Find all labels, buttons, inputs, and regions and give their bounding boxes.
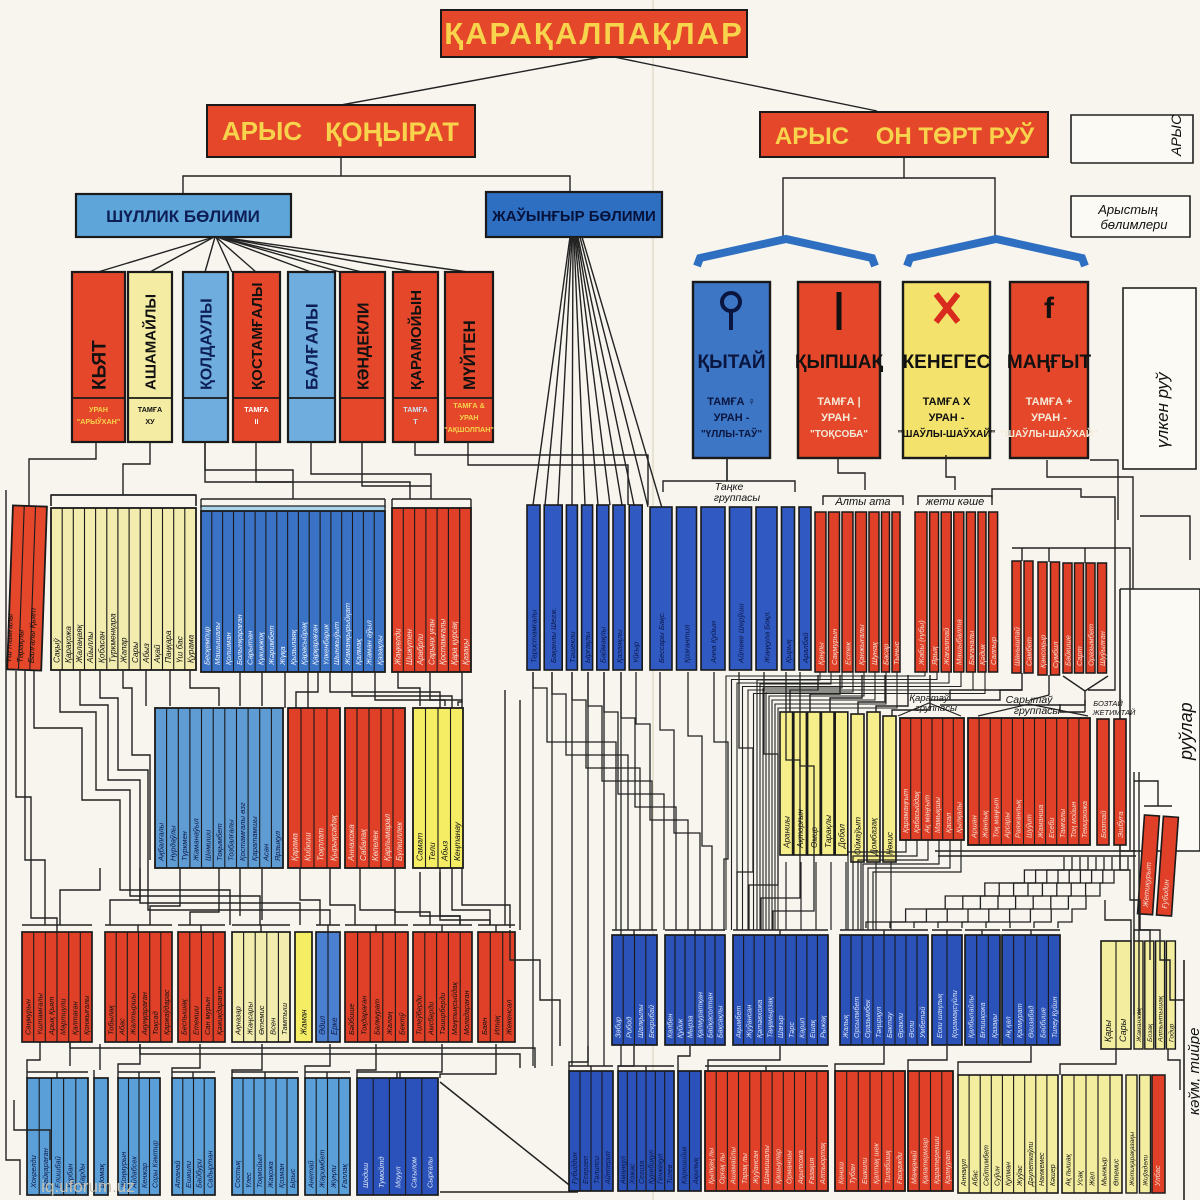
svg-text:Араншы: Араншы [782, 816, 791, 849]
svg-text:бөлимлери: бөлимлери [1100, 217, 1167, 232]
svg-text:Оразымбек: Оразымбек [863, 999, 872, 1038]
svg-text:Қарасыйрақ: Қарасыйрақ [300, 622, 309, 665]
svg-text:ҚОСТАМҒАЛЫ: ҚОСТАМҒАЛЫ [249, 282, 266, 390]
svg-text:Моуул: Моуул [393, 1166, 402, 1188]
svg-text:КЕНЕГЕС: КЕНЕГЕС [903, 352, 991, 373]
svg-text:Қырық: Қырық [784, 639, 793, 663]
svg-text:Тоқплат: Тоқплат [317, 828, 326, 861]
svg-text:Тәрс: Тәрс [787, 1022, 796, 1038]
svg-text:Кәлбен: Кәлбен [666, 1014, 675, 1038]
svg-text:Тилабшиқ: Тилабшиқ [883, 1150, 892, 1184]
svg-text:Байбури: Байбури [195, 1159, 204, 1188]
svg-text:Т: Т [413, 417, 418, 426]
svg-text:Хожас: Хожас [630, 1163, 637, 1185]
svg-text:кәўм, тийре: кәўм, тийре [1186, 1028, 1200, 1115]
svg-text:Тилев: Тилев [667, 1164, 674, 1184]
svg-text:Тарақлы: Тарақлы [15, 630, 25, 663]
svg-text:Сабалақ: Сабалақ [359, 828, 368, 861]
svg-text:Айыллы: Айыллы [86, 632, 95, 664]
svg-text:Ғубиддин: Ғубиддин [570, 1152, 579, 1184]
svg-text:Қазақы: Қазақы [461, 639, 470, 665]
svg-text:Қолшман: Қолшман [224, 631, 233, 665]
svg-text:Манқанай: Манқанай [909, 1151, 918, 1184]
svg-text:Қырықсадақ: Қырықсадақ [330, 814, 339, 861]
svg-text:МҮЙТЕН: МҮЙТЕН [460, 320, 479, 390]
svg-text:ТАМҒА: ТАМҒА [403, 405, 427, 414]
svg-text:Аршан: Аршан [969, 815, 978, 839]
svg-text:Қанжығалы: Қанжығалы [857, 624, 866, 665]
svg-text:Тели: Тели [427, 842, 437, 861]
svg-text:Амсберди: Амсберди [426, 1002, 435, 1036]
svg-text:Қалмурат: Қалмурат [1015, 1003, 1024, 1038]
svg-text:Күкикжоқ: Күкикжоқ [256, 632, 265, 665]
svg-text:Балмурат: Балмурат [372, 999, 381, 1035]
svg-text:Абас: Абас [971, 1170, 979, 1187]
svg-text:Аннақул: Аннақул [961, 1159, 968, 1187]
svg-text:Сағылом: Сағылом [410, 1157, 419, 1188]
svg-text:Рыжақ: Рыжақ [819, 1015, 828, 1038]
svg-text:Ақторғын: Ақторғын [796, 809, 805, 849]
svg-text:Қалмақ: Қалмақ [354, 639, 363, 665]
svg-text:Кәрип: Кәрип [797, 1018, 806, 1038]
svg-text:Соры Кәмтир: Соры Кәмтир [151, 1140, 160, 1188]
svg-text:Тәшекли: Тәшекли [568, 631, 577, 663]
svg-text:ҚОЛДАУЛЫ: ҚОЛДАУЛЫ [198, 298, 215, 390]
svg-text:Қурама: Қурама [187, 634, 196, 663]
svg-text:Бозтай: Бозтай [1099, 810, 1108, 838]
svg-text:Атанай: Атанай [173, 1161, 182, 1189]
svg-text:Анетай: Анетай [306, 1161, 315, 1189]
svg-text:Сарынх уған: Сарынх уған [428, 618, 437, 665]
svg-text:БАЛҒАЛЫ: БАЛҒАЛЫ [303, 303, 322, 390]
svg-text:Өтемис: Өтемис [257, 1005, 266, 1035]
svg-text:Тәңирқул: Тәңирқул [874, 1007, 883, 1038]
svg-text:Садыртан: Садыртан [205, 1151, 214, 1188]
svg-text:Жапар: Жапар [120, 637, 129, 664]
svg-text:Қалбылайлы: Қалбылайлы [967, 994, 976, 1038]
svg-text:Бектў: Бектў [398, 1011, 407, 1035]
svg-text:УРАН: УРАН [89, 405, 108, 414]
svg-text:Тилеўберди: Тилеўберди [415, 995, 424, 1035]
svg-text:Кийкиш: Кийкиш [304, 832, 313, 861]
svg-text:Сумбил: Сумбил [1051, 641, 1060, 668]
svg-text:Оймаўыт: Оймаўыт [854, 817, 863, 855]
svg-text:Ақ пышақ: Ақ пышақ [1066, 1153, 1073, 1187]
svg-text:Мамықшы: Мамықшы [933, 797, 942, 833]
svg-text:Жалаңаяқ: Жалаңаяқ [75, 623, 84, 664]
svg-text:Қарамаңғыт: Қарамаңғыт [901, 789, 910, 833]
svg-text:ШҮЛЛИК БӨЛИМИ: ШҮЛЛИК БӨЛИМИ [106, 207, 260, 226]
svg-text:Ақназар: Ақназар [234, 1006, 243, 1036]
svg-text:Ырғақлы: Ырғақлы [583, 631, 592, 663]
svg-text:Қулман: Қулман [1006, 1162, 1013, 1186]
svg-text:Ғасқажди: Ғасқажди [895, 1152, 904, 1184]
svg-text:группасы: группасы [714, 492, 761, 504]
svg-text:УРАН -: УРАН - [929, 412, 965, 424]
svg-text:Жаңсары: Жаңсары [245, 1001, 254, 1036]
svg-text:Шуўылған: Шуўылған [1098, 631, 1107, 666]
svg-text:Ешақ: Ешақ [808, 1019, 817, 1038]
svg-text:Көпелек: Көпелек [371, 829, 380, 861]
svg-text:Жаңқула Боқл.: Жаңқула Боқл. [762, 611, 771, 664]
svg-text:Баймақлы: Баймақлы [599, 626, 608, 663]
svg-text:Жабы (ғүбы): Жабы (ғүбы) [917, 620, 926, 666]
svg-text:Өгизабад: Өгизабад [1027, 1006, 1036, 1038]
svg-text:Анна Қуйын: Анна Қуйын [709, 620, 718, 664]
svg-text:Қазаяқлы: Қазаяқлы [615, 629, 624, 663]
svg-text:Ешкили: Ешкили [860, 1158, 869, 1184]
svg-text:Шанышпай: Шанышпай [1012, 627, 1021, 666]
svg-text:Ақымбет: Ақымбет [734, 1006, 743, 1039]
svg-text:ҚАРАМОЙЫН: ҚАРАМОЙЫН [407, 290, 425, 390]
svg-text:УРАН -: УРАН - [714, 412, 750, 424]
svg-text:Алтынтышақ: Алтынтышақ [1158, 995, 1165, 1043]
svg-text:АРЫС: АРЫС [775, 123, 849, 150]
svg-text:Тоқдараған: Тоқдараған [360, 996, 369, 1035]
svg-text:Бақанлы Шегж.: Бақанлы Шегж. [549, 608, 558, 663]
svg-text:Қуребиқул: Қуребиқул [647, 1150, 655, 1184]
svg-text:Бәйкише: Бәйкише [1063, 635, 1072, 666]
svg-text:Қалтаған: Қалтаған [70, 1001, 79, 1035]
svg-text:Домбазақ: Домбазақ [870, 817, 879, 856]
svg-text:Сақыў: Сақыў [53, 638, 62, 663]
svg-text:МАҢҒЫТ: МАҢҒЫТ [1007, 352, 1092, 373]
svg-text:Паңқара: Паңқара [164, 630, 173, 663]
svg-text:Ақ маңғыт: Ақ маңғыт [923, 795, 932, 834]
svg-text:"ШАЎЛЫ-ШАЎХАЙ": "ШАЎЛЫ-ШАЎХАЙ" [898, 427, 996, 440]
svg-text:Машышалы: Машышалы [213, 622, 222, 665]
svg-text:Қостамғалы өзг: Қостамғалы өзг [238, 802, 247, 861]
svg-text:Ырыс: Ырыс [288, 1168, 297, 1188]
svg-text:Теристамғалы: Теристамғалы [529, 609, 538, 663]
svg-text:Жаңкелди: Жаңкелди [394, 628, 403, 666]
svg-text:Тубан: Тубан [848, 1164, 857, 1184]
svg-text:Жекенсал: Жекенсал [505, 999, 514, 1036]
svg-text:"АҚШОЛПАН": "АҚШОЛПАН" [444, 425, 494, 434]
svg-text:Қары: Қары [1103, 1020, 1113, 1042]
svg-text:"АРЫЎХАН": "АРЫЎХАН" [77, 417, 120, 426]
svg-text:Кениш: Кениш [837, 1162, 846, 1184]
svg-text:Қәдик: Қәдик [978, 644, 987, 665]
svg-text:Ғаллақ: Ғаллақ [340, 1164, 349, 1188]
svg-text:Айтеке Шерўши: Айтеке Шерўши [736, 603, 745, 664]
svg-text:ОН ТӨРТ РУЎ: ОН ТӨРТ РУЎ [876, 122, 1036, 150]
svg-text:Умбетәй: Умбетәй [918, 1007, 927, 1039]
svg-text:Тарақ лы: Тарақ лы [740, 1152, 749, 1184]
svg-text:Байқасолтан: Байқасолтан [706, 993, 715, 1038]
svg-text:Жуўансан: Жуўансан [745, 1005, 754, 1039]
svg-text:Қылқаң лы: Қылқаң лы [706, 1147, 715, 1184]
svg-text:Сары: Сары [1118, 1018, 1128, 1042]
svg-text:Жаманша: Жаманша [1036, 805, 1045, 839]
svg-text:Шижүтен: Шижүтен [405, 628, 414, 665]
svg-text:Сарытан: Сарытан [246, 630, 255, 665]
svg-text:Ярзықул: Ярзықул [273, 830, 282, 862]
svg-text:II: II [255, 417, 259, 426]
svg-text:Абыз: Абыз [142, 643, 151, 664]
svg-text:Шәмиши: Шәмиши [203, 829, 212, 861]
svg-text:Зәбир: Зәбир [613, 1017, 622, 1038]
svg-text:Жаман: Жаман [300, 1009, 309, 1036]
svg-text:Нанжемес: Нанжемес [1039, 1152, 1046, 1186]
svg-text:Қәжиқдараған: Қәжиқдараған [215, 986, 224, 1035]
svg-text:Тоқмойыл: Тоқмойыл [255, 1154, 264, 1188]
svg-text:Қәтәвхожа: Қәтәвхожа [755, 1000, 764, 1038]
svg-text:Мынжыр: Мынжыр [1102, 1157, 1109, 1186]
svg-text:Усақ: Усақ [1078, 1170, 1085, 1187]
svg-text:Қозғантил: Қозғантил [682, 624, 691, 663]
svg-text:Бақсақлы: Бақсақлы [716, 1005, 725, 1038]
svg-text:Сақмурын: Сақмурын [830, 628, 839, 665]
svg-text:Қостамғалы: Қостамғалы [439, 618, 448, 665]
svg-text:Тоқсад: Тоқсад [151, 1011, 160, 1035]
svg-text:Бағаналы: Бағаналы [967, 630, 976, 665]
svg-text:Таңамырзақ: Таңамырзақ [766, 996, 775, 1038]
svg-text:Әдил: Әдил [318, 1015, 327, 1035]
svg-text:Улбас: Улбас [1153, 1165, 1162, 1187]
svg-text:Жақожа: Жақожа [266, 1161, 275, 1189]
svg-text:Шуўит: Шуўит [1025, 814, 1034, 838]
svg-text:Жәримбет: Жәримбет [267, 625, 276, 666]
svg-text:АРЫС: АРЫС [222, 116, 303, 146]
svg-text:Үлкенбарик: Үлкенбарик [321, 624, 330, 665]
svg-text:БОЗТАЙ: БОЗТАЙ [1093, 699, 1123, 708]
svg-text:Баян: Баян [480, 1017, 489, 1035]
svg-text:Абыз: Абыз [439, 841, 449, 862]
svg-text:Бәйбише: Бәйбише [1038, 1007, 1047, 1038]
svg-text:ҚЫТАЙ: ҚЫТАЙ [698, 351, 766, 373]
svg-text:Тилеу Қуйин: Тилеу Қуйин [1050, 997, 1059, 1038]
svg-text:Сегиза: Сегиза [639, 1161, 646, 1184]
svg-text:КӘНДЕКЛИ: КӘНДЕКЛИ [355, 303, 372, 391]
svg-text:Суўин: Суўин [994, 1166, 1002, 1186]
svg-text:Кәрешийик: Кәрешийик [680, 1146, 689, 1184]
svg-text:Ақбалғалы: Ақбалғалы [157, 822, 166, 862]
svg-text:Бессары Бақс.: Бессары Бақс. [657, 612, 666, 663]
svg-text:Орғақ лы: Орғақ лы [718, 1152, 727, 1184]
svg-text:Әсли: Әсли [907, 1021, 916, 1038]
svg-text:АРЫС: АРЫС [1168, 114, 1184, 157]
svg-text:Жанлық: Жанлық [980, 810, 989, 839]
svg-text:Всен: Всен [269, 1017, 278, 1035]
svg-text:Қозман: Қозман [277, 1164, 286, 1188]
svg-text:ҚОҢЫРАТ: ҚОҢЫРАТ [325, 117, 459, 147]
svg-text:Арыстың: Арыстың [1097, 202, 1158, 217]
svg-text:Қобасан: Қобасан [97, 631, 106, 663]
svg-text:Тамтыш: Тамтыш [280, 1002, 289, 1035]
svg-text:Добал: Добал [838, 824, 847, 849]
svg-text:Шодиш: Шодиш [361, 1163, 370, 1188]
svg-text:Есеби: Есеби [1047, 818, 1056, 838]
svg-text:Ақуңқараған: Ақуңқараған [140, 992, 149, 1036]
svg-text:Жаманаўыл: Жаманаўыл [192, 818, 201, 862]
svg-text:Бәктәу: Бәктәу [885, 1012, 894, 1038]
svg-text:Қабасыйдақ: Қабасыйдақ [912, 791, 921, 833]
svg-text:Шунақ: Шунақ [870, 642, 879, 665]
svg-text:Арабрли: Арабрли [416, 633, 425, 666]
svg-text:Дәулеткаўли: Дәулеткаўли [1027, 1142, 1035, 1187]
svg-text:Беспышақ: Беспышақ [180, 999, 189, 1035]
svg-text:Түркменқара: Түркменқара [109, 613, 118, 663]
svg-text:Тарақлы: Тарақлы [824, 815, 833, 848]
svg-text:Хоңгелди: Хоңгелди [29, 1155, 38, 1189]
svg-text:Моладараған: Моладараған [462, 990, 471, 1035]
svg-text:Аннахожа: Аннахожа [347, 824, 356, 862]
svg-text:Салпыр: Салпыр [989, 637, 998, 665]
svg-text:Сан мурын: Сан мурын [203, 997, 212, 1035]
svg-text:Түркмен: Түркмен [180, 830, 189, 861]
svg-text:Үйғыр: Үйғыр [632, 642, 641, 663]
svg-text:Алты ата: Алты ата [834, 496, 890, 508]
svg-text:ҚАРАҚАЛПАҚЛАР: ҚАРАҚАЛПАҚЛАР [444, 16, 744, 51]
svg-text:Шәмишалы: Шәмишалы [762, 1145, 771, 1184]
svg-text:Қазақы: Қазақы [990, 1013, 999, 1038]
svg-text:Орманшы: Орманшы [785, 1150, 794, 1184]
svg-text:Кәшер: Кәшер [1050, 1164, 1057, 1186]
svg-text:Жүқа: Жүқа [278, 646, 287, 666]
svg-text:Абас: Абас [118, 1018, 127, 1036]
svg-text:Айнперип: Айнперип [603, 1151, 612, 1185]
svg-text:Қашыулар: Қашыулар [773, 1149, 782, 1184]
svg-text:Қара қурсақ: Қара қурсақ [450, 621, 459, 665]
svg-text:Қылқалы: Қылқалы [955, 801, 964, 833]
svg-text:Алтыортақ: Алтыортақ [818, 1142, 827, 1185]
svg-text:жети кәше: жети кәше [925, 496, 984, 508]
svg-text:Сары: Сары [131, 642, 140, 663]
svg-text:Қаратамшы: Қаратамшы [250, 816, 259, 861]
svg-text:Жиўадели: Жиўадели [1142, 1155, 1150, 1187]
svg-text:"ТОҚСОБА": "ТОҚСОБА" [810, 429, 868, 440]
svg-text:Қарқараған: Қарқараған [311, 624, 320, 665]
svg-text:Ақылық: Ақылық [691, 1157, 700, 1185]
svg-text:Ерке: Ерке [330, 1017, 339, 1035]
svg-text:Тоқымбет: Тоқымбет [215, 823, 224, 861]
svg-text:үлкен руў: үлкен руў [1153, 371, 1172, 448]
svg-text:ТАМҒА |: ТАМҒА | [817, 396, 860, 408]
svg-text:Қызылаяқ: Қызылаяқ [289, 629, 298, 665]
svg-text:Қалмуратқан: Қалмуратқан [696, 992, 705, 1038]
svg-text:Генжеқул: Генжеқул [658, 1153, 665, 1184]
svg-text:Саңмурын: Саңмурын [24, 999, 33, 1035]
svg-text:Қонжығалы: Қонжығалы [82, 995, 91, 1035]
svg-text:Сырғалы: Сырғалы [426, 1156, 435, 1188]
svg-text:Состық: Состық [233, 1160, 242, 1188]
svg-text:Бекрибай: Бекрибай [647, 1005, 656, 1038]
svg-text:Қаржаўдарас: Қаржаўдарас [162, 989, 171, 1035]
svg-text:Сарт: Сарт [1075, 646, 1084, 666]
svg-text:Шалқылы: Шалқылы [636, 1004, 645, 1038]
svg-text:f: f [1044, 292, 1055, 325]
svg-text:Есергеп: Есергеп [581, 1156, 590, 1184]
svg-text:Асан: Асан [261, 843, 270, 862]
svg-text:Қуйик: Қуйик [676, 1018, 685, 1038]
svg-text:Кеңтанау: Кеңтанау [452, 821, 462, 861]
svg-text:Өтемис: Өтемис [1114, 1158, 1121, 1186]
svg-text:Аралбай: Аралбай [801, 632, 810, 664]
svg-text:Қалатермзар: Қалатермзар [921, 1138, 930, 1184]
svg-text:Самбет: Самбет [1024, 637, 1033, 666]
svg-text:руўлар: руўлар [1176, 702, 1196, 761]
svg-text:Ешкили: Ешкили [184, 1161, 193, 1188]
svg-text:ЖАЎЫНҒЫР БӨЛИМИ: ЖАЎЫНҒЫР БӨЛИМИ [491, 207, 656, 225]
svg-text:Бғлииқожа: Бғлииқожа [978, 1002, 987, 1038]
svg-text:Тобылақ: Тобылақ [106, 1005, 115, 1035]
svg-text:Годир: Годир [1168, 1023, 1176, 1042]
svg-text:Қарақожа: Қарақожа [64, 626, 73, 663]
svg-text:Шынжыўыт: Шынжыўыт [332, 622, 341, 665]
svg-text:Мәртиули: Мәртиули [59, 998, 68, 1035]
svg-text:Тумойтд: Тумойтд [377, 1157, 386, 1188]
svg-text:Маңтықсыйдақ: Маңтықсыйдақ [450, 981, 459, 1035]
svg-text:Басар: Басар [881, 644, 890, 665]
svg-text:ҚЫПШАҚ: ҚЫПШАҚ [795, 352, 884, 373]
svg-text:Жаман аўыл: Жаман аўыл [365, 619, 374, 666]
svg-text:Қазақлы: Қазақлы [376, 635, 385, 665]
svg-text:ТАМҒА +: ТАМҒА + [1026, 396, 1073, 408]
svg-text:ТАМҒА &: ТАМҒА & [453, 401, 485, 410]
svg-text:Қалтақ шек: Қалтақ шек [872, 1143, 881, 1184]
svg-text:Раяжанлық: Раяжанлық [1014, 799, 1023, 838]
svg-text:ТАМҒА ♀: ТАМҒА ♀ [707, 396, 756, 408]
svg-text:Оразымбет: Оразымбет [1086, 624, 1095, 666]
svg-text:Жуўас: Жуўас [1016, 1165, 1024, 1187]
svg-text:Темирхожа: Темирхожа [1080, 801, 1089, 838]
svg-text:Жалаң: Жалаң [385, 1012, 394, 1036]
svg-text:Қаратерекши: Қаратерекши [932, 1136, 941, 1184]
svg-text:Болынқараған: Болынқараған [235, 614, 244, 665]
svg-text:Ашамайлы: Ашамайлы [729, 1146, 738, 1185]
svg-text:УРАН: УРАН [459, 413, 478, 422]
svg-text:Жәримбет: Жәримбет [318, 1149, 327, 1189]
svg-text:ХУ: ХУ [145, 417, 155, 426]
svg-text:Бәйбише: Бәйбише [347, 1003, 356, 1035]
svg-text:Қорамақсүйли: Қорамақсүйли [950, 990, 959, 1038]
svg-text:Арсары: Арсары [1003, 812, 1012, 839]
svg-text:АШАМАЙЛЫ: АШАМАЙЛЫ [141, 294, 159, 390]
svg-text:Естек: Естек [843, 642, 852, 665]
svg-text:Самат: Самат [414, 833, 424, 861]
svg-text:Өракли: Өракли [896, 1013, 905, 1038]
svg-text:Бесқемпир: Бесқемпир [202, 627, 211, 665]
svg-text:Шағыр: Шағыр [776, 1015, 785, 1038]
svg-text:Жетиқарақазақы: Жетиқарақазақы [1129, 1132, 1136, 1187]
svg-text:Тоң мойын: Тоң мойын [1069, 802, 1078, 838]
svg-text:Жаманқырыйқат: Жаманқырыйқат [343, 603, 352, 666]
svg-text:Қарлымарал: Қарлымарал [383, 813, 392, 861]
svg-text:Жалтыршы: Жалтыршы [129, 992, 138, 1036]
svg-text:Жуўансан: Жуўансан [751, 1151, 760, 1185]
svg-text:Сейтимбет: Сейтимбет [982, 1145, 990, 1186]
svg-text:Ақ қал: Ақ қал [1004, 1016, 1013, 1039]
svg-text:Ярық: Ярық [930, 646, 939, 666]
svg-text:ТАМҒА: ТАМҒА [138, 405, 162, 414]
svg-text:Эшбуға: Эшбуға [1116, 811, 1125, 838]
svg-text:Бозақ: Бозақ [1147, 1023, 1154, 1042]
svg-text:Жалық: Жалық [841, 1014, 850, 1039]
svg-text:Нурдаўлы: Нурдаўлы [168, 825, 177, 861]
svg-text:Тозбалғалы: Тозбалғалы [227, 819, 236, 861]
svg-text:Тыныс: Тыныс [892, 641, 901, 665]
svg-text:Ақылхожа: Ақылхожа [796, 1150, 805, 1185]
svg-text:группасы: группасы [1014, 705, 1061, 717]
svg-text:iq.uforum.uz: iq.uforum.uz [41, 1177, 135, 1196]
svg-text:Тамғалы: Тамғалы [1058, 808, 1067, 838]
svg-text:Жуңли: Жуңли [329, 1165, 338, 1189]
svg-text:Тәлипси: Тәлипси [592, 1156, 601, 1184]
svg-text:Тәширберди: Тәширберди [438, 993, 447, 1035]
svg-text:Қаңлы: Қаңлы [816, 642, 825, 665]
svg-text:УРАН -: УРАН - [1031, 412, 1067, 424]
